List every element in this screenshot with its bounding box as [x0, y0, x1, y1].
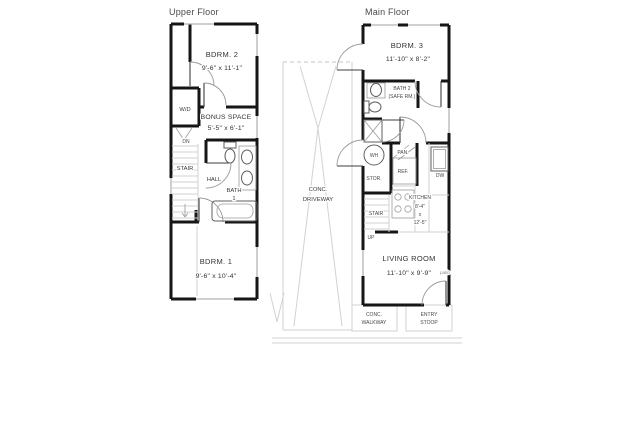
bath2-sink — [371, 84, 382, 97]
bath1-toilet-tank — [224, 142, 236, 148]
bath1-door-arc — [206, 163, 231, 188]
kitchen-label-3: x — [419, 212, 422, 218]
stove-burner-4 — [405, 206, 411, 212]
kitchen-counter-right — [429, 143, 449, 232]
walkway-box — [352, 305, 397, 331]
bonus-dims: 5'-5" x 6'-1" — [208, 125, 245, 132]
stoop-label-1: ENTRY — [421, 312, 439, 318]
hall-label: HALL — [207, 177, 222, 183]
kitchen-label-1: KITCHEN — [409, 195, 431, 201]
main-floor-plan: Main Floor WH — [337, 7, 450, 305]
shower-x-mark — [364, 120, 382, 142]
bdrm2-dims: 9'-6" x 11'-1" — [202, 65, 243, 72]
stoop-label-2: STOOP — [420, 320, 438, 326]
bath2-label-2: (SAFE RM.) — [389, 94, 416, 100]
walkway-label-2: WALKWAY — [362, 320, 387, 326]
bath1-label-2: 1 — [232, 196, 235, 202]
driveway-outline — [283, 62, 352, 330]
upper-stair-label: STAIR — [177, 166, 194, 172]
bonus-label: BONUS SPACE — [201, 114, 252, 121]
kitchen-label-4: 12'-5" — [414, 220, 427, 226]
main-stair-label: STAIR — [369, 211, 384, 217]
ground-lines — [272, 338, 462, 343]
ref-label: REF. — [398, 169, 409, 175]
dn-label: DN — [182, 139, 190, 145]
bdrm2-door-arc — [204, 83, 226, 105]
bath2-toilet-tank — [364, 101, 369, 113]
shower-door-arc — [382, 120, 404, 142]
bdrm2-label: BDRM. 2 — [206, 50, 239, 59]
stove-burner-1 — [395, 194, 401, 200]
upper-floor-title: Upper Floor — [169, 7, 219, 17]
bath1-label-1: BATH — [226, 188, 241, 194]
up-label: UP — [368, 235, 376, 241]
pan-label: PAN. — [397, 150, 408, 156]
patio-label: patio — [439, 270, 450, 275]
main-floor-title: Main Floor — [365, 7, 410, 17]
bdrm1-dims: 9'-6" x 10'-4" — [196, 273, 237, 280]
driveway-turn-lines — [294, 66, 342, 326]
bath2-toilet-bowl — [369, 102, 381, 112]
bath1-sink-1 — [242, 150, 253, 164]
stoop-box — [406, 305, 452, 331]
dishwasher-inner — [434, 150, 446, 169]
stor-label: STOR. — [366, 176, 381, 182]
living-label: LIVING ROOM — [382, 254, 435, 263]
front-door-arc — [422, 281, 446, 305]
kitchen-label-2: 8'-4" — [415, 204, 425, 210]
bath1-toilet-bowl — [225, 149, 235, 163]
bath1-vanity — [239, 146, 256, 190]
living-dims: 11'-10" x 9'-9" — [387, 270, 432, 277]
driveway-label-1: CONC. — [309, 187, 328, 193]
dw-label: DW — [436, 173, 445, 179]
floor-plan-page: Upper Floor BDRM. 2 9'-6" x 11'-1" W/D — [0, 0, 640, 426]
bdrm1-door-arc — [199, 198, 223, 222]
upper-floor-plan: Upper Floor BDRM. 2 9'-6" x 11'-1" W/D — [169, 7, 257, 299]
bath1-sink-2 — [242, 171, 253, 185]
stove-burner-3 — [395, 206, 401, 212]
site-area: CONC. DRIVEWAY CONC. WALKWAY ENTRY STOOP — [270, 62, 462, 343]
floor-plan-drawing: Upper Floor BDRM. 2 9'-6" x 11'-1" W/D — [0, 0, 640, 426]
wd-label: W/D — [179, 107, 190, 113]
wh-label: WH — [370, 153, 379, 159]
bdrm3-side-door-arc — [337, 44, 363, 70]
bath2-vanity — [367, 83, 385, 98]
walkway-label-1: CONC. — [366, 312, 382, 318]
bdrm3-label: BDRM. 3 — [391, 41, 424, 50]
walkway-chevron — [270, 293, 284, 322]
bdrm1-label: BDRM. 1 — [200, 257, 233, 266]
driveway-label-2: DRIVEWAY — [303, 197, 333, 203]
utility-side-door-arc — [337, 140, 363, 166]
bath2-label-1: BATH 2 — [393, 86, 410, 92]
bdrm3-dims: 11'-10" x 8'-2" — [386, 56, 431, 63]
